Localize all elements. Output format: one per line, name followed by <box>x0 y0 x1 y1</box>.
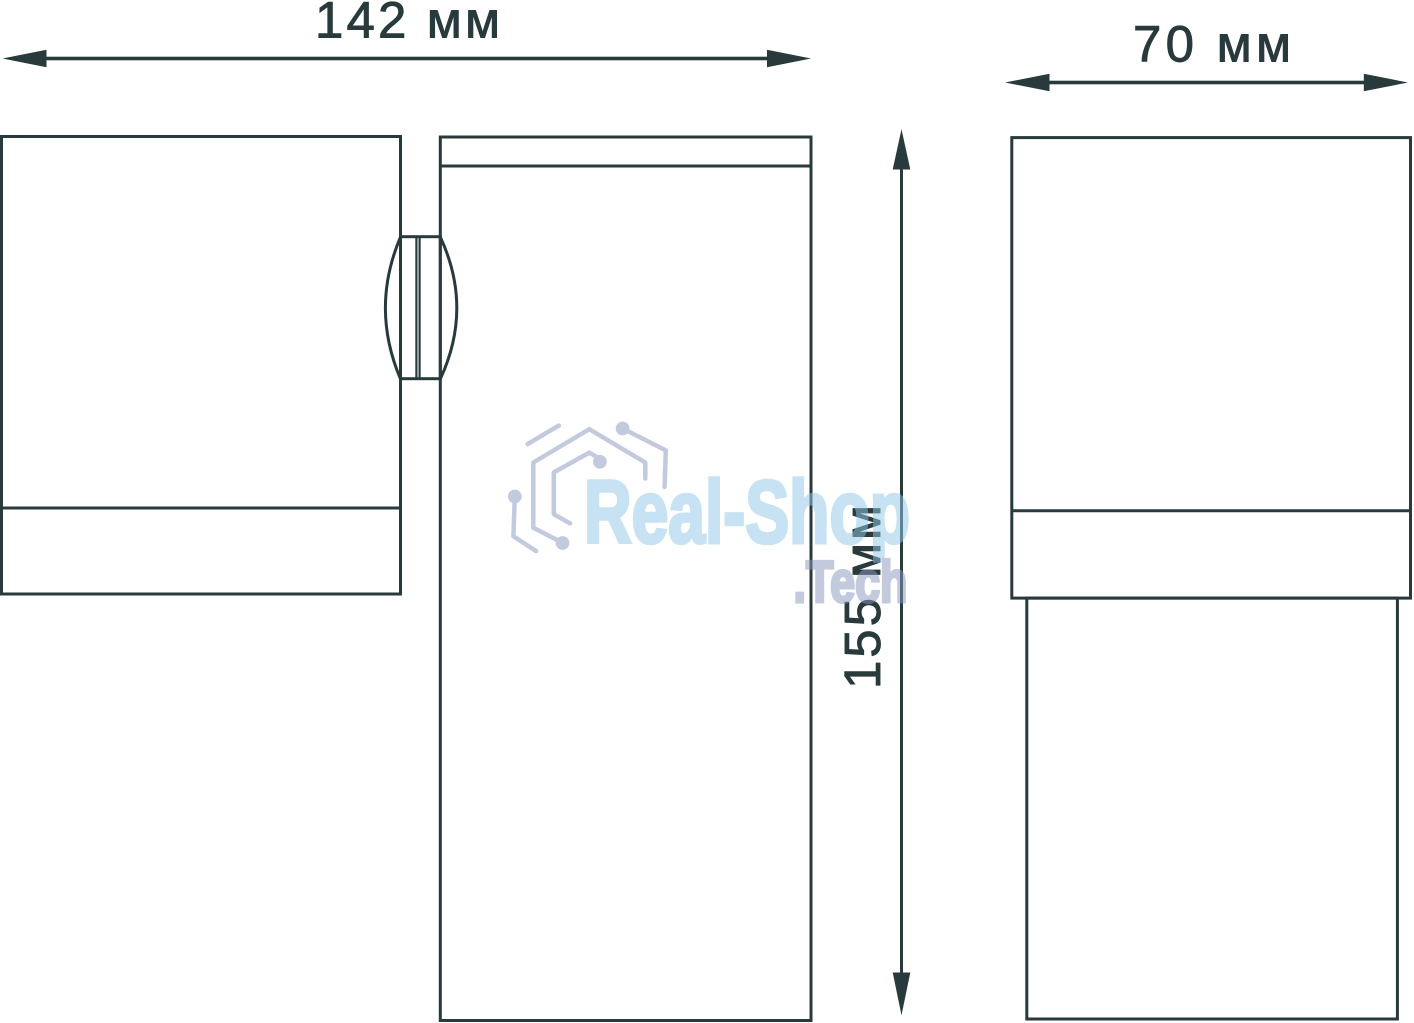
svg-text:70 мм: 70 мм <box>1133 16 1291 73</box>
svg-text:.Tech: .Tech <box>794 550 908 615</box>
svg-text:142 мм: 142 мм <box>315 0 500 49</box>
svg-text:Real-Shop: Real-Shop <box>584 462 910 562</box>
